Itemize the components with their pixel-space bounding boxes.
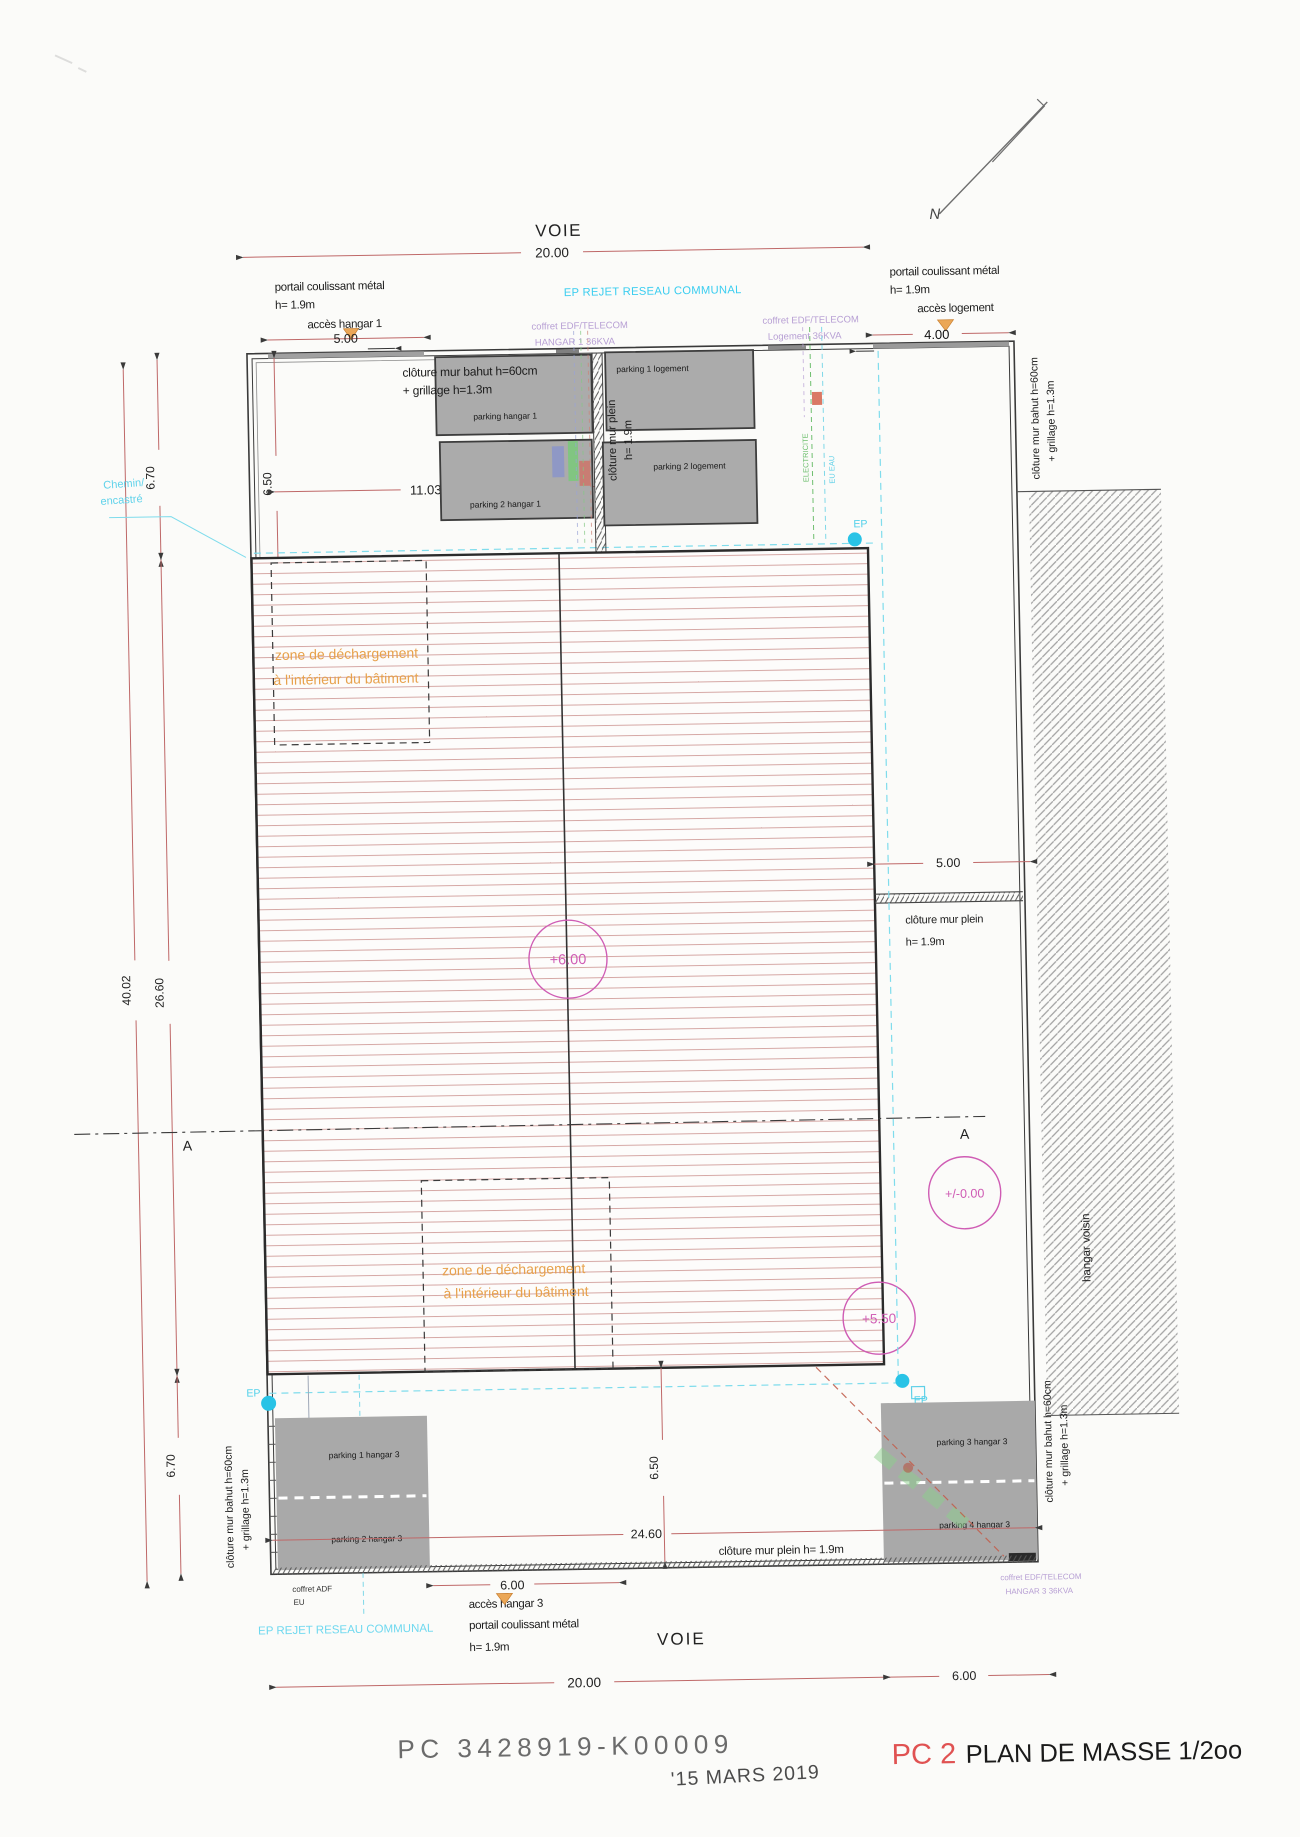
svg-text:4.00: 4.00	[924, 327, 950, 342]
svg-text:EP: EP	[246, 1387, 260, 1399]
svg-text:portail coulissant métal: portail coulissant métal	[889, 265, 999, 279]
svg-text:portail coulissant métal: portail coulissant métal	[469, 1618, 579, 1632]
svg-text:24.60: 24.60	[631, 1527, 663, 1542]
svg-text:clôture mur plein h= 1.9m: clôture mur plein h= 1.9m	[719, 1544, 844, 1558]
svg-text:VOIE: VOIE	[657, 1629, 706, 1649]
svg-text:accès logement: accès logement	[917, 302, 995, 315]
svg-text:h= 1.9m: h= 1.9m	[469, 1641, 509, 1654]
svg-text:PC 2: PC 2	[891, 1738, 956, 1771]
svg-text:5.00: 5.00	[936, 856, 961, 870]
svg-text:clôture mur bahut h=60cm: clôture mur bahut h=60cm	[1028, 357, 1042, 480]
svg-text:+6.00: +6.00	[549, 952, 586, 969]
svg-text:hangar voisin: hangar voisin	[1080, 1213, 1093, 1282]
svg-text:EP: EP	[853, 518, 867, 530]
svg-text:+ grillage h=1.3m: + grillage h=1.3m	[1045, 380, 1059, 462]
svg-text:26.60: 26.60	[152, 978, 167, 1009]
svg-text:coffret EDF/TELECOM: coffret EDF/TELECOM	[531, 320, 628, 333]
svg-text:40.02: 40.02	[119, 975, 134, 1006]
svg-text:clôture mur bahut h=60cm: clôture mur bahut h=60cm	[1041, 1380, 1055, 1503]
svg-text:EU: EU	[293, 1598, 305, 1607]
svg-text:11.03: 11.03	[410, 482, 442, 498]
svg-text:h= 1.9m: h= 1.9m	[906, 936, 945, 949]
svg-text:6.50: 6.50	[647, 1456, 661, 1480]
svg-text:à l'intérieur du bâtiment: à l'intérieur du bâtiment	[443, 1283, 588, 1301]
svg-text:parking 2 logement: parking 2 logement	[653, 460, 726, 471]
svg-text:zone de déchargement: zone de déchargement	[275, 645, 419, 663]
svg-text:h= 1.9m: h= 1.9m	[622, 420, 635, 460]
svg-text:+ grillage h=1.3m: + grillage h=1.3m	[403, 382, 493, 397]
svg-text:portail coulissant métal: portail coulissant métal	[275, 280, 385, 294]
svg-text:h= 1.9m: h= 1.9m	[890, 284, 930, 297]
svg-text:clôture mur plein: clôture mur plein	[606, 400, 620, 482]
svg-text:clôture mur plein: clôture mur plein	[905, 913, 983, 926]
svg-text:h= 1.9m: h= 1.9m	[275, 299, 315, 312]
svg-text:+ grillage h=1.3m: + grillage h=1.3m	[1058, 1404, 1072, 1486]
svg-text:5.00: 5.00	[333, 331, 358, 345]
svg-text:N: N	[929, 206, 940, 223]
svg-text:coffret ADF: coffret ADF	[292, 1584, 332, 1594]
svg-text:parking 1 logement: parking 1 logement	[616, 363, 689, 374]
svg-text:6.00: 6.00	[952, 1669, 977, 1683]
svg-text:+/-0.00: +/-0.00	[945, 1186, 985, 1201]
svg-text:6.70: 6.70	[143, 466, 157, 490]
svg-text:EU EAU: EU EAU	[827, 456, 837, 484]
svg-text:clôture mur bahut h=60cm: clôture mur bahut h=60cm	[222, 1446, 236, 1569]
svg-text:+ grillage h=1.3m: + grillage h=1.3m	[239, 1469, 253, 1551]
svg-text:6.50: 6.50	[260, 472, 274, 496]
svg-text:zone de déchargement: zone de déchargement	[442, 1260, 586, 1278]
svg-text:6.70: 6.70	[164, 1454, 178, 1478]
svg-text:A: A	[183, 1137, 193, 1153]
svg-text:HANGAR 1 36KVA: HANGAR 1 36KVA	[535, 336, 616, 348]
svg-text:PLAN DE MASSE 1/2oo: PLAN DE MASSE 1/2oo	[965, 1736, 1242, 1769]
svg-text:parking 1 hangar 3: parking 1 hangar 3	[329, 1449, 400, 1460]
svg-text:coffret EDF/TELECOM: coffret EDF/TELECOM	[762, 314, 859, 327]
svg-text:HANGAR 3 36KVA: HANGAR 3 36KVA	[1005, 1586, 1073, 1596]
svg-text:6.00: 6.00	[500, 1578, 525, 1592]
svg-text:parking 3 hangar 3: parking 3 hangar 3	[937, 1436, 1008, 1447]
svg-text:parking hangar 1: parking hangar 1	[473, 411, 537, 422]
svg-text:A: A	[960, 1126, 970, 1142]
svg-text:ELECTRICITE: ELECTRICITE	[801, 433, 811, 482]
svg-text:clôture mur bahut h=60cm: clôture mur bahut h=60cm	[402, 364, 537, 380]
svg-text:+5.50: +5.50	[862, 1311, 896, 1327]
svg-text:VOIE: VOIE	[535, 221, 582, 241]
svg-text:Logement 36KVA: Logement 36KVA	[768, 331, 843, 343]
svg-text:20.00: 20.00	[567, 1675, 601, 1691]
svg-text:20.00: 20.00	[535, 245, 569, 261]
svg-text:parking 2 hangar 1: parking 2 hangar 1	[470, 499, 541, 510]
svg-text:à l'intérieur du bâtiment: à l'intérieur du bâtiment	[273, 670, 418, 688]
svg-text:coffret EDF/TELECOM: coffret EDF/TELECOM	[1000, 1572, 1082, 1582]
svg-text:PC 3428919-K00009: PC 3428919-K00009	[397, 1729, 734, 1765]
